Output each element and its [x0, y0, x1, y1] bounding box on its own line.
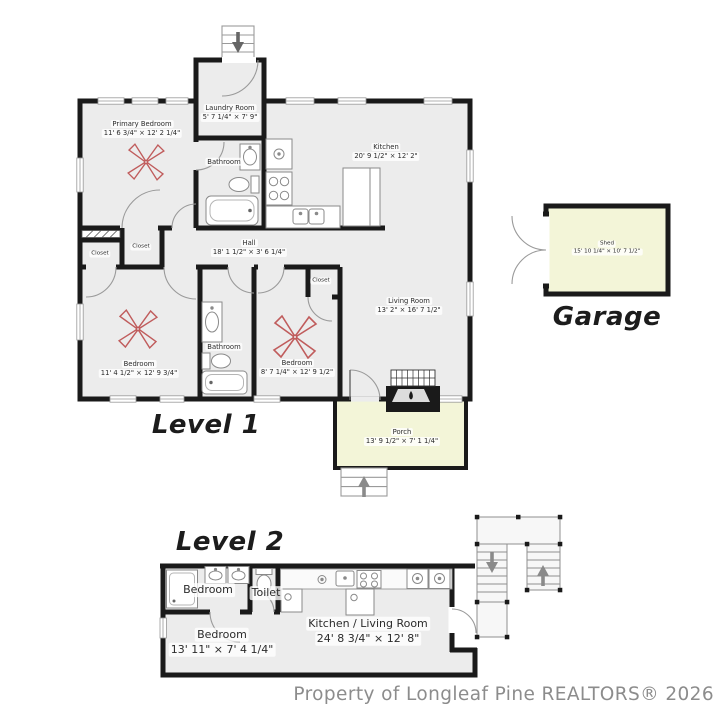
sink-icon [228, 567, 249, 584]
sink-icon [205, 567, 226, 584]
stove-icon [266, 172, 292, 205]
sink-icon [202, 302, 222, 342]
toilet-icon [229, 176, 259, 193]
room-label-porch: Porch13' 9 1/2" × 7' 1 1/4" [364, 428, 440, 446]
garage-title: Garage [553, 302, 662, 332]
room-label-bathroom-top: Bathroom [205, 158, 242, 166]
bathtub-icon [202, 371, 247, 394]
level1-plan [77, 26, 473, 497]
kitchen-island [343, 168, 380, 226]
copyright-text: Property of Longleaf Pine REALTORS® 2026 [293, 684, 714, 705]
room-label-shed: Shed15' 10 1/4" × 10' 7 1/2" [572, 241, 643, 256]
washer-icon [407, 569, 428, 589]
floorplan-page: Primary Bedroom11' 6 3/4" × 12' 2 1/4" L… [0, 0, 720, 720]
dryer-icon [429, 569, 450, 589]
room-label-laundry: Laundry Room5' 7 1/4" × 7' 9" [201, 104, 260, 122]
fireplace-icon [386, 370, 440, 412]
appliance-icon [346, 589, 374, 615]
windows-level2 [160, 618, 166, 638]
toilet-icon [202, 353, 231, 369]
room-label-l2-toilet: Toilet [250, 586, 283, 600]
level2-title: Level 2 [176, 527, 284, 557]
bathtub-icon [206, 196, 258, 225]
level1-title: Level 1 [152, 410, 260, 440]
kitchen-sink-icon [336, 571, 354, 586]
exterior-stairs [475, 515, 563, 640]
room-label-closet-c: Closet [310, 278, 331, 285]
room-label-bedroom-mid: Bedroom8' 7 1/4" × 12' 9 1/2" [259, 359, 335, 377]
room-label-bedroom-left: Bedroom11' 4 1/2" × 12' 9 3/4" [99, 360, 179, 378]
refrigerator-icon [266, 139, 292, 169]
hatch-strip [82, 231, 120, 238]
garage-doors [512, 216, 546, 284]
dishwasher-icon [281, 589, 302, 612]
room-label-primary-bedroom: Primary Bedroom11' 6 3/4" × 12' 2 1/4" [102, 120, 182, 138]
sink-icon [240, 144, 260, 170]
room-label-closet-a: Closet [89, 251, 110, 258]
room-label-l2-kitchen-living: Kitchen / Living Room24' 8 3/4" × 12' 8" [306, 617, 430, 646]
room-label-closet-b: Closet [130, 244, 151, 251]
room-label-l2-bedroom-suite: Bedroom [181, 583, 235, 597]
room-label-hall: Hall18' 1 1/2" × 3' 6 1/4" [211, 239, 287, 257]
room-label-bathroom-bottom: Bathroom [205, 343, 242, 351]
room-label-kitchen: Kitchen20' 9 1/2" × 12' 2" [352, 143, 419, 161]
room-label-living-room: Living Room13' 2" × 16' 7 1/2" [375, 297, 442, 315]
room-label-l2-bedroom: Bedroom13' 11" × 7' 4 1/4" [169, 628, 276, 657]
stove-icon [357, 571, 381, 589]
